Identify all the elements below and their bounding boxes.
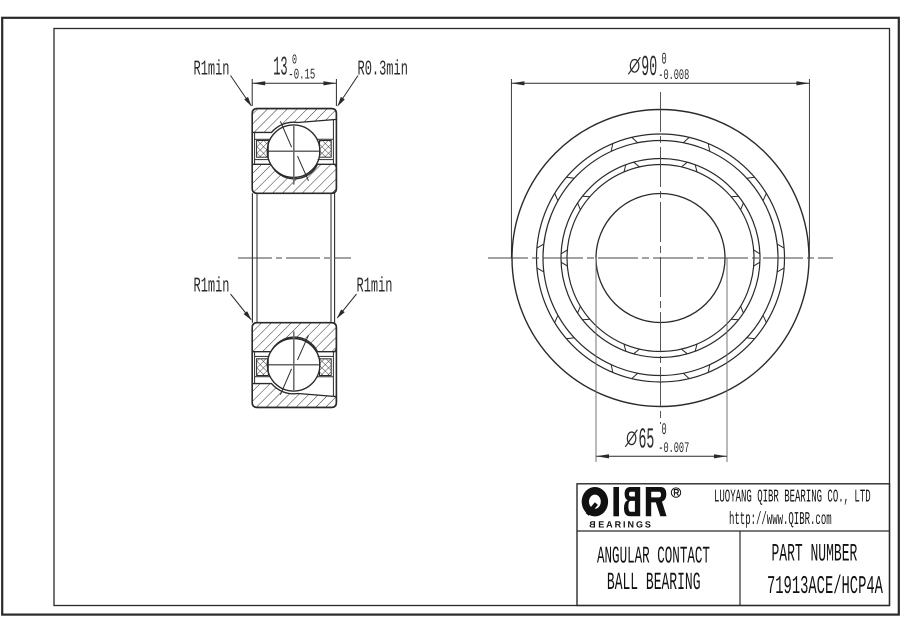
svg-text:R1min: R1min <box>357 274 393 299</box>
svg-text:65: 65 <box>639 423 655 456</box>
svg-text:BALL BEARING: BALL BEARING <box>607 568 701 597</box>
svg-text:B: B <box>589 519 596 529</box>
svg-text:13: 13 <box>273 52 287 84</box>
svg-text:R1min: R1min <box>194 57 230 82</box>
svg-text:-0.15: -0.15 <box>288 67 315 84</box>
svg-text:http://www.QIBR.com: http://www.QIBR.com <box>729 510 832 530</box>
svg-text:-0.007: -0.007 <box>658 440 689 457</box>
svg-text:R0.3min: R0.3min <box>358 57 408 82</box>
svg-text:71913ACE/HCP4A: 71913ACE/HCP4A <box>767 575 884 603</box>
svg-text:R1min: R1min <box>194 274 230 299</box>
svg-text:ANGULAR CONTACT: ANGULAR CONTACT <box>597 544 710 571</box>
svg-text:EARINGS: EARINGS <box>598 519 653 529</box>
svg-text:LUOYANG QIBR BEARING CO., LTD: LUOYANG QIBR BEARING CO., LTD <box>714 488 871 508</box>
svg-text:0: 0 <box>662 421 667 440</box>
svg-text:-0.008: -0.008 <box>658 67 689 84</box>
svg-text:PART NUMBER: PART NUMBER <box>772 539 858 568</box>
svg-text:90: 90 <box>641 51 657 84</box>
